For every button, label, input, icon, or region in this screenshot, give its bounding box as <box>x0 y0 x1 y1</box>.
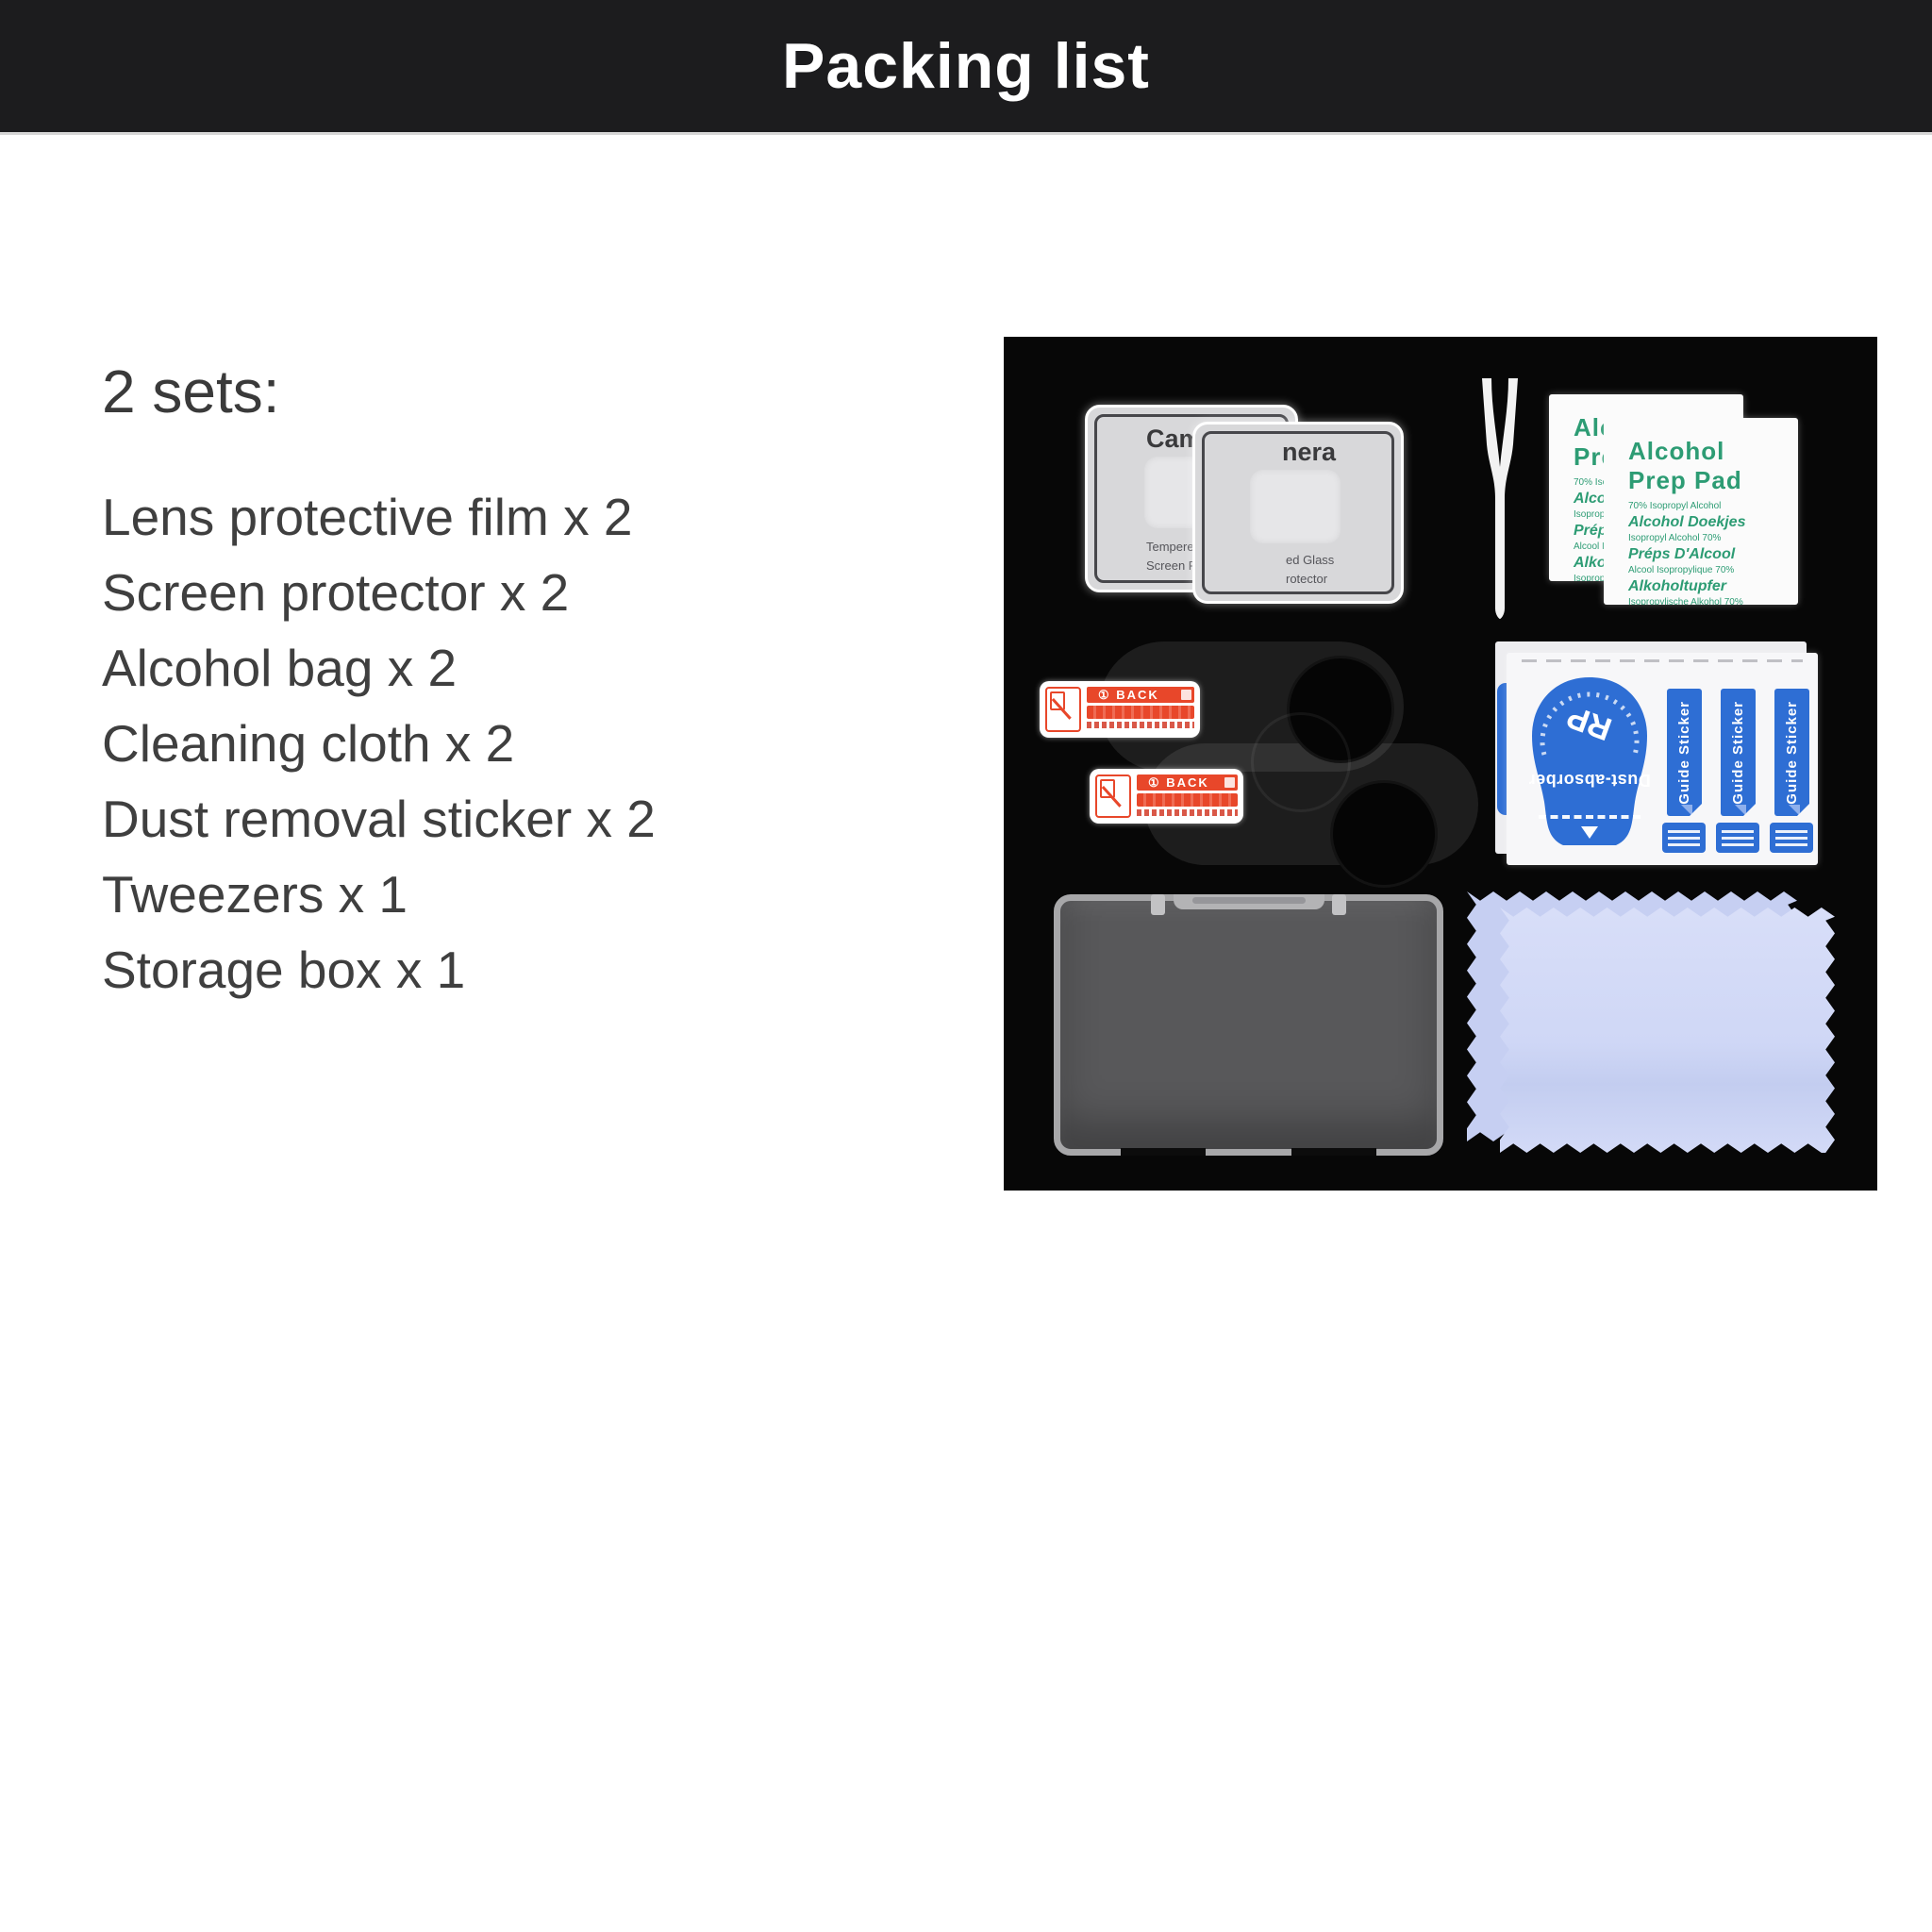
guide-sticker-tab <box>1770 823 1813 853</box>
pad-title-line: Prep Pad <box>1628 466 1742 494</box>
card-caption-line: Screen P <box>1146 557 1196 575</box>
box-foot <box>1121 1148 1206 1156</box>
guide-sticker-label: Guide Sticker <box>1676 701 1692 805</box>
sheet-fine-print <box>1522 659 1803 662</box>
product-photo-panel: Cam Tempere Screen P nera ed Glass rotec… <box>1004 337 1877 1191</box>
guide-sticker-label: Guide Sticker <box>1730 701 1746 805</box>
card-title-fragment: nera <box>1282 438 1336 467</box>
guide-sticker-strip: Guide Sticker <box>1774 689 1809 816</box>
pad-line: Alcohol Doekjes <box>1628 514 1790 530</box>
peel-phone-icon <box>1095 774 1131 818</box>
item-list: Lens protective film x 2 Screen protecto… <box>102 479 913 1008</box>
list-item: Lens protective film x 2 <box>102 479 913 555</box>
pad-title-line: Alcohol <box>1628 437 1724 465</box>
card-caption-line: rotector <box>1286 570 1334 589</box>
pad-title: Alcohol Prep Pad <box>1628 437 1790 495</box>
card-caption: Tempere Screen P <box>1146 538 1196 575</box>
tweezers <box>1475 376 1524 624</box>
arrow-down-icon <box>1581 826 1598 839</box>
pad-line: 70% Isopropyl Alcohol <box>1628 501 1790 512</box>
box-foot <box>1291 1148 1376 1156</box>
page-title: Packing list <box>782 29 1150 103</box>
sticker-text-bar <box>1137 793 1238 807</box>
guide-sticker-sheet: RP Dust-absorber Guide Sticker Guide Sti… <box>1507 653 1818 865</box>
list-item: Cleaning cloth x 2 <box>102 706 913 781</box>
tear-dash-line <box>1539 815 1641 819</box>
back-peel-sticker-1: ① BACK <box>1040 681 1200 738</box>
guide-sticker-strip: Guide Sticker <box>1721 689 1756 816</box>
guide-sticker-tab <box>1662 823 1706 853</box>
dust-absorber-sticker: RP Dust-absorber <box>1524 675 1656 853</box>
box-clip <box>1332 894 1346 915</box>
camera-glass-card-front: nera ed Glass rotector <box>1192 422 1404 604</box>
cleaning-cloth-front <box>1500 908 1835 1153</box>
guide-sticker-label: Guide Sticker <box>1784 701 1800 805</box>
list-item: Alcohol bag x 2 <box>102 630 913 706</box>
pad-print: Alcohol Prep Pad 70% Isopropyl Alcohol A… <box>1604 418 1798 605</box>
sticker-print: ① BACK <box>1137 774 1238 818</box>
lens-film-hole <box>1330 780 1438 888</box>
header-bar: Packing list <box>0 0 1932 135</box>
sticker-fine-print <box>1137 809 1238 816</box>
alcohol-pad-front: Alcohol Prep Pad 70% Isopropyl Alcohol A… <box>1604 418 1798 605</box>
pad-line: Alkoholtupfer <box>1628 578 1790 594</box>
sticker-print: ① BACK <box>1087 687 1194 732</box>
sticker-fine-print <box>1087 722 1194 728</box>
guide-sticker-strip: Guide Sticker <box>1667 689 1702 816</box>
box-clip <box>1151 894 1165 915</box>
pad-line: Isopropylische Alkohol 70% <box>1628 597 1790 605</box>
sticker-text-bar <box>1087 706 1194 719</box>
packing-list-infographic: Packing list 2 sets: Lens protective fil… <box>0 0 1932 1932</box>
peel-phone-icon <box>1045 687 1081 732</box>
back-label: ① BACK <box>1087 687 1194 703</box>
list-item: Tweezers x 1 <box>102 857 913 932</box>
pad-line: Préps D'Alcool <box>1628 546 1790 562</box>
card-caption-line: Tempere <box>1146 538 1196 557</box>
tweezers-icon <box>1475 376 1524 624</box>
box-latch <box>1174 894 1324 909</box>
card-caption-line: ed Glass <box>1286 551 1334 570</box>
back-label: ① BACK <box>1137 774 1238 791</box>
storage-box <box>1054 894 1443 1156</box>
sets-heading: 2 sets: <box>102 357 913 426</box>
list-item: Dust removal sticker x 2 <box>102 781 913 857</box>
lens-film-ring <box>1251 712 1351 812</box>
card-lens-window <box>1250 470 1341 543</box>
card-caption: ed Glass rotector <box>1286 551 1334 589</box>
pad-line: Isopropyl Alcohol 70% <box>1628 533 1790 544</box>
list-item: Screen protector x 2 <box>102 555 913 630</box>
dust-absorber-label: Dust-absorber <box>1524 770 1656 790</box>
pad-line: Alcool Isopropylique 70% <box>1628 565 1790 576</box>
pad-text-lines: 70% Isopropyl Alcohol Alcohol Doekjes Is… <box>1628 501 1790 605</box>
list-item: Storage box x 1 <box>102 932 913 1008</box>
contents-list: 2 sets: Lens protective film x 2 Screen … <box>102 357 913 1008</box>
back-peel-sticker-2: ① BACK <box>1090 769 1243 824</box>
guide-sticker-tab <box>1716 823 1759 853</box>
